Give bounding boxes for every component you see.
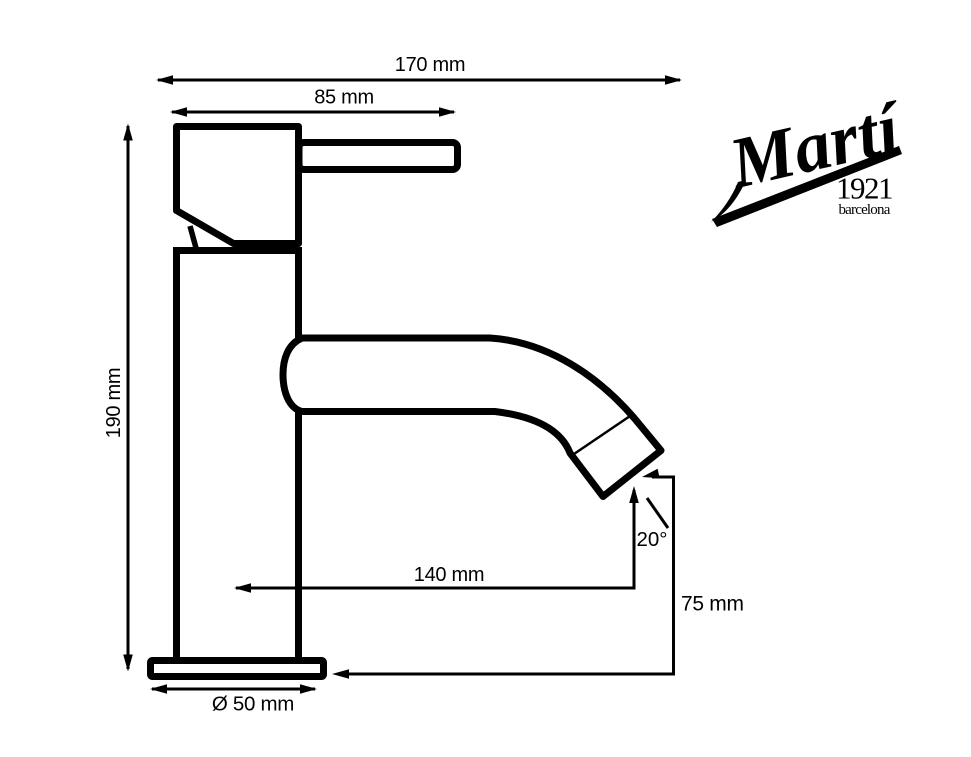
svg-text:75 mm: 75 mm <box>681 593 744 616</box>
svg-text:1921: 1921 <box>836 171 892 206</box>
svg-text:190 mm: 190 mm <box>103 368 125 438</box>
svg-text:140 mm: 140 mm <box>414 564 484 586</box>
svg-text:barcelona: barcelona <box>838 202 890 218</box>
svg-text:170 mm: 170 mm <box>395 54 465 76</box>
svg-text:20°: 20° <box>636 528 667 551</box>
svg-text:85 mm: 85 mm <box>314 87 374 109</box>
svg-text:Ø 50 mm: Ø 50 mm <box>212 693 294 716</box>
